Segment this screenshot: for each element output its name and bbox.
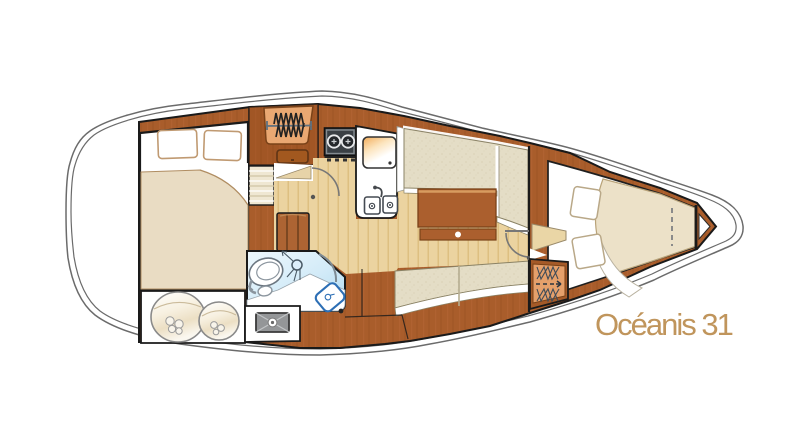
svg-text:Océanis 31: Océanis 31: [595, 307, 733, 342]
